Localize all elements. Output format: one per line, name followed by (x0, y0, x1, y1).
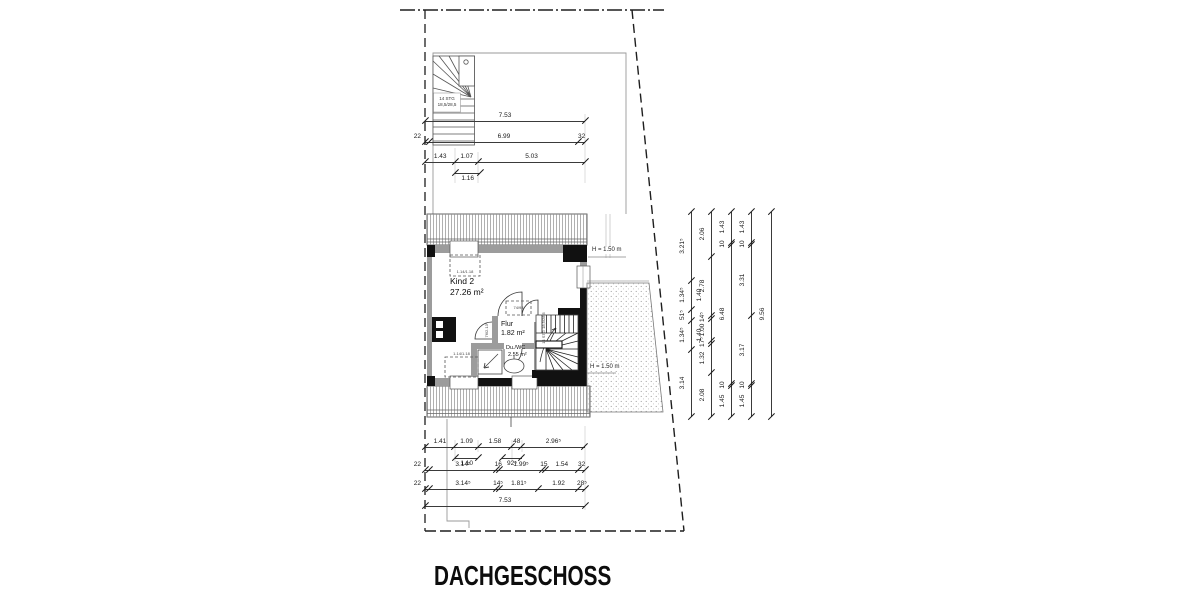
dim-line-right-total (771, 212, 772, 417)
dim-label: 7.53 (485, 112, 525, 120)
dim-label: 2.08 (699, 375, 707, 415)
dim-label: 6.48 (719, 294, 727, 334)
dim-line-top-outer (425, 142, 585, 143)
dim-tick (727, 413, 734, 420)
dim-label: 1.45 (719, 381, 727, 421)
dim-label-secondary: 1.40 (696, 315, 704, 355)
dim-label: 3.31 (739, 260, 747, 300)
dim-label: 6.99 (484, 133, 524, 141)
dim-line-top-total (425, 121, 585, 122)
dim-label: 32 (562, 133, 602, 141)
dim-label: 3.14 (679, 363, 687, 403)
dim-label: 1.07 (447, 153, 487, 161)
dim-line-bot-total (425, 506, 585, 507)
dim-tick (581, 117, 588, 124)
dim-line-bot-1b (455, 458, 478, 459)
dim-line-bot-3 (425, 489, 585, 490)
dim-tick (767, 413, 774, 420)
dim-label: 48 (497, 438, 537, 446)
dim-line-bot-2 (425, 470, 585, 471)
dim-label: 28⁵ (562, 480, 602, 488)
dim-label: 1.16 (448, 175, 488, 183)
dim-tick (747, 413, 754, 420)
dim-label: 22 (397, 480, 437, 488)
dim-label: 3.21⁵ (679, 226, 687, 266)
dim-label: 22 (397, 461, 437, 469)
dim-label: 1.34⁵ (679, 315, 687, 355)
dim-tick (581, 502, 588, 509)
dim-tick (581, 443, 588, 450)
dim-label: 2.96⁵ (533, 438, 573, 446)
dim-line-top-inner (425, 162, 585, 163)
dim-label: 10 (739, 224, 747, 264)
dim-label: 3.17 (739, 330, 747, 370)
dim-label: 3.14⁵ (443, 461, 483, 469)
dim-label: 10 (719, 224, 727, 264)
dim-label: 9.56 (759, 294, 767, 334)
dim-label: 2.06 (699, 214, 707, 254)
dim-label: 5.03 (512, 153, 552, 161)
dim-line-bot-1 (425, 447, 585, 448)
dim-label: 7.53 (485, 497, 525, 505)
dim-tick (687, 413, 694, 420)
dim-line-right-1 (691, 212, 692, 417)
dim-tick (581, 158, 588, 165)
floorplan-page: Kind 2 27.26 m² Flur 1.82 m² Du./WC 2.55… (0, 0, 1200, 600)
dim-line-top-sec (455, 173, 480, 174)
dim-label: 22 (397, 133, 437, 141)
dim-label: 1.45 (739, 381, 747, 421)
dim-label-secondary: 1.40 (696, 275, 704, 315)
dimension-chains: 7.53226.99321.431.075.031.161.411.091.58… (0, 0, 1200, 600)
dim-tick (707, 413, 714, 420)
dim-label: 1.81⁵ (499, 480, 539, 488)
dim-label: 32 (562, 461, 602, 469)
